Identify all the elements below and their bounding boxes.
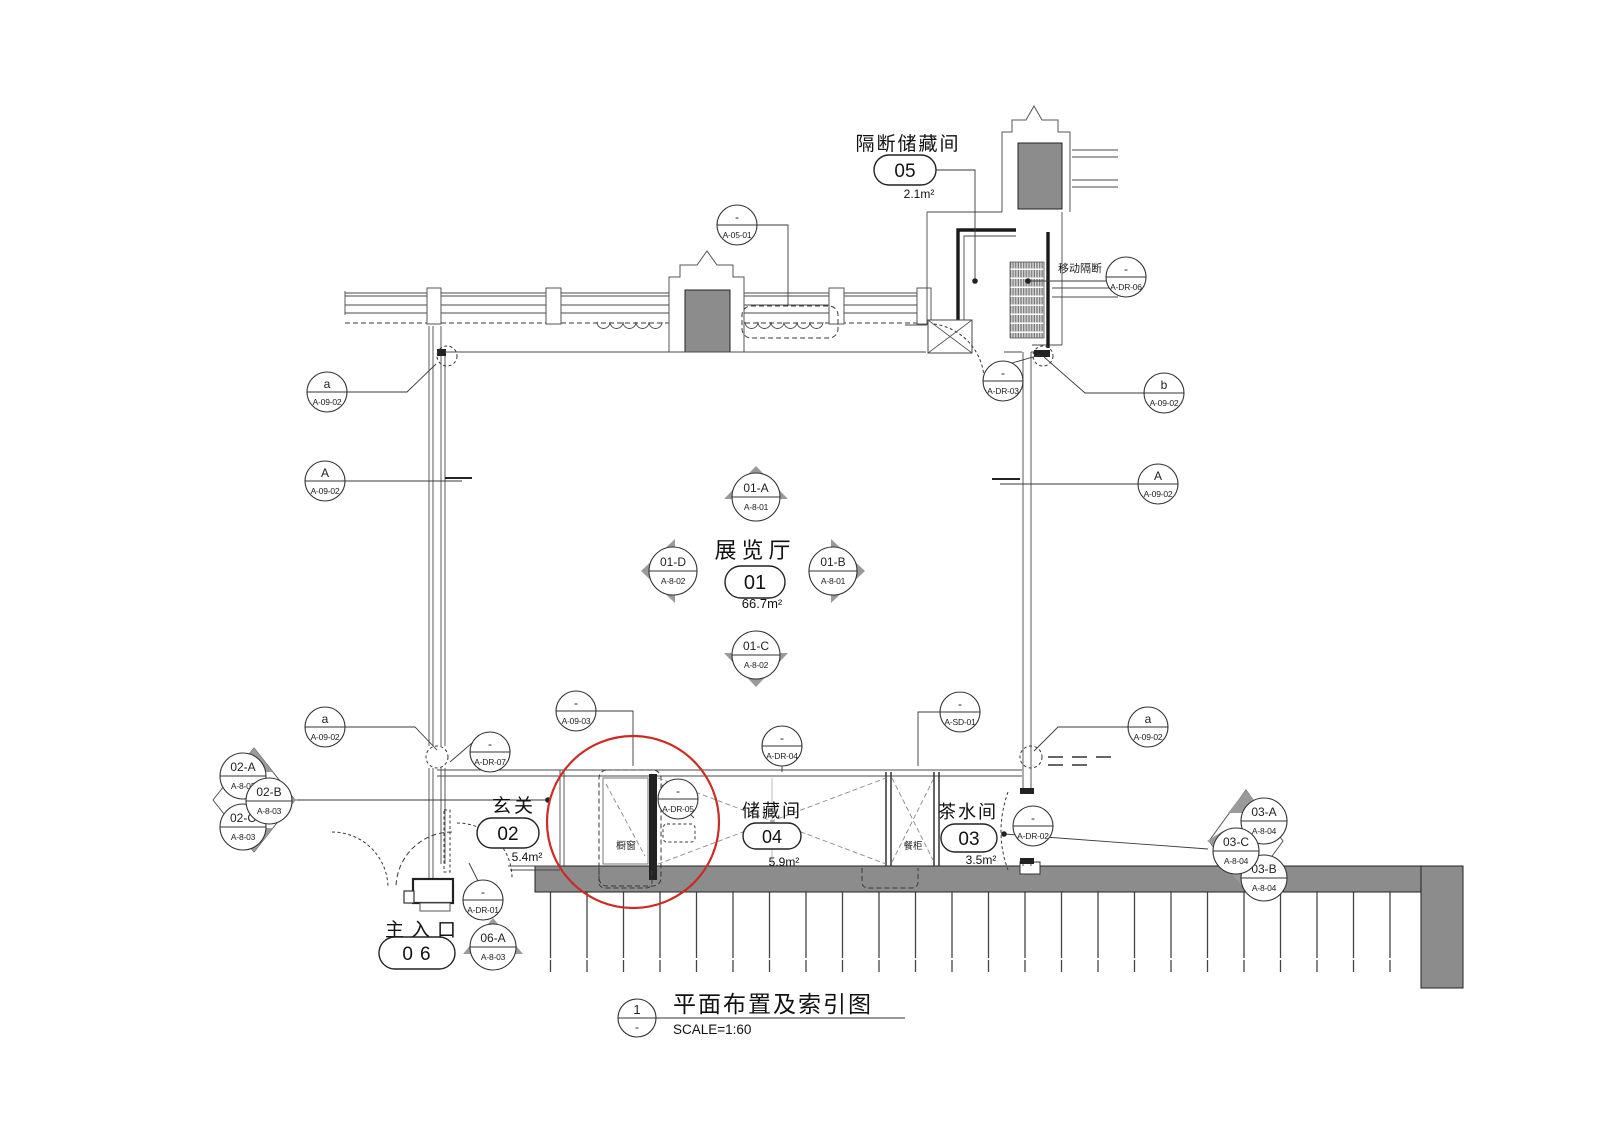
callout-a-dr-02: - A-DR-02	[1013, 806, 1053, 846]
column-fill	[1018, 143, 1062, 209]
svg-text:A-DR-01: A-DR-01	[467, 905, 499, 915]
svg-text:-: -	[1124, 262, 1128, 276]
svg-text:A-DR-07: A-DR-07	[474, 757, 506, 767]
svg-text:-: -	[481, 885, 485, 899]
elev-marker-01-c: 01-C A-8-02	[724, 631, 788, 687]
sideboard-label: 餐柜	[903, 840, 923, 852]
svg-text:01-B: 01-B	[820, 555, 845, 569]
svg-text:A: A	[1154, 469, 1162, 483]
elev-marker-02-b: 02-B A-8-03	[246, 778, 292, 824]
svg-text:02-A: 02-A	[230, 760, 255, 774]
svg-text:01: 01	[744, 572, 766, 594]
svg-text:01-C: 01-C	[743, 639, 769, 653]
svg-text:A-DR-05: A-DR-05	[662, 804, 694, 814]
room-partition-storage	[905, 212, 1062, 353]
svg-text:2.1m²: 2.1m²	[904, 187, 935, 201]
svg-text:茶水间: 茶水间	[938, 802, 998, 822]
svg-text:02-B: 02-B	[256, 785, 281, 799]
callout-a-dr-07: - A-DR-07	[470, 732, 510, 772]
sheet-number: 1	[633, 1002, 640, 1017]
svg-text:5.9m²: 5.9m²	[769, 855, 800, 869]
svg-text:-: -	[676, 784, 680, 798]
svg-text:A-8-03: A-8-03	[231, 832, 256, 842]
movable-partition-label: 移动隔断	[1058, 261, 1102, 275]
entrance-door-arc-left	[332, 832, 388, 888]
column-top-right	[1002, 106, 1070, 212]
svg-text:-: -	[958, 697, 962, 711]
svg-text:A-DR-06: A-DR-06	[1110, 282, 1142, 292]
svg-text:隔断储藏间: 隔断储藏间	[855, 133, 960, 155]
pier	[917, 288, 931, 324]
axis-bubble-a-top-left: a A-09-02	[307, 372, 347, 412]
svg-text:A-09-03: A-09-03	[562, 716, 591, 726]
axis-bubble-A-right: A A-09-02	[1138, 464, 1178, 504]
svg-text:玄关: 玄关	[492, 795, 536, 817]
room-tag-entry: 玄关 02 5.4m²	[477, 795, 542, 864]
svg-text:-: -	[1031, 811, 1035, 825]
elev-marker-cluster-02: 02-A A-8-03 02-C A-8-03 02-B A-8-03	[213, 748, 297, 852]
svg-text:A-8-03: A-8-03	[481, 952, 506, 962]
svg-text:展览厅: 展览厅	[714, 538, 795, 563]
axis-bubble-b-top-right: b A-09-02	[1144, 373, 1184, 413]
svg-text:a: a	[322, 712, 329, 726]
svg-text:03-C: 03-C	[1223, 835, 1249, 849]
elev-marker-03-c: 03-C A-8-04	[1213, 828, 1259, 874]
svg-text:A-8-04: A-8-04	[1252, 826, 1277, 836]
facade-detail-dashed-box	[742, 306, 838, 338]
svg-text:A-8-04: A-8-04	[1224, 856, 1249, 866]
elev-marker-01-a: 01-A A-8-01	[724, 466, 788, 521]
svg-text:06-A: 06-A	[480, 931, 505, 945]
column-fill	[685, 290, 730, 352]
axis-bubble-a-bottom-right: a A-09-02	[1128, 707, 1168, 747]
svg-text:A-09-02: A-09-02	[1144, 489, 1173, 499]
svg-text:-: -	[574, 696, 578, 710]
svg-text:A-09-02: A-09-02	[1150, 398, 1179, 408]
pier	[546, 288, 561, 324]
callout-a-dr-03: - A-DR-03	[983, 361, 1023, 401]
room-tag-main-entrance: 主入口 06	[379, 919, 463, 969]
svg-text:A-8-02: A-8-02	[661, 576, 686, 586]
floor-plan-drawing: a A-09-02 A A-09-02 b A-09-02 A A-09-02 …	[0, 0, 1600, 1131]
svg-text:A-8-04: A-8-04	[1252, 883, 1277, 893]
entrance-step-block	[413, 879, 453, 903]
display-window-mullion	[649, 774, 657, 880]
svg-text:01-A: 01-A	[743, 481, 768, 495]
elev-marker-01-b: 01-B A-8-01	[809, 539, 865, 603]
svg-text:A-09-02: A-09-02	[311, 732, 340, 742]
svg-text:-: -	[780, 731, 784, 745]
room-tag-storage: 储藏间 04 5.9m²	[742, 801, 802, 869]
svg-text:05: 05	[894, 161, 915, 182]
room-tag-tea: 茶水间 03 3.5m²	[938, 802, 998, 867]
svg-text:A-8-03: A-8-03	[257, 806, 282, 816]
svg-text:a: a	[1145, 712, 1152, 726]
svg-text:A-09-02: A-09-02	[1134, 732, 1163, 742]
title-block: 1 - 平面布置及索引图 SCALE=1:60	[618, 991, 905, 1037]
svg-text:A-09-02: A-09-02	[311, 486, 340, 496]
svg-text:A-DR-04: A-DR-04	[766, 751, 798, 761]
svg-text:A-8-02: A-8-02	[744, 660, 769, 670]
svg-text:01-D: 01-D	[660, 555, 686, 569]
axis-bubble-a-bottom-left: a A-09-02	[305, 707, 345, 747]
svg-text:3.5m²: 3.5m²	[966, 853, 997, 867]
tea-room-door-arc	[1001, 792, 1008, 870]
room-tag-partition-storage: 隔断储藏间 05 2.1m²	[855, 133, 960, 201]
elev-marker-01-d: 01-D A-8-02	[641, 539, 697, 603]
svg-text:A: A	[321, 466, 329, 480]
svg-text:-: -	[735, 210, 739, 224]
svg-text:A-DR-03: A-DR-03	[987, 386, 1019, 396]
svg-text:b: b	[1161, 378, 1168, 392]
svg-text:02: 02	[497, 824, 518, 845]
callout-a-dr-05: - A-DR-05	[658, 779, 698, 819]
callout-a-sd-01: - A-SD-01	[940, 692, 980, 732]
pier	[427, 288, 441, 324]
callout-a-05-01: - A-05-01	[717, 205, 757, 245]
column-top-center	[669, 251, 744, 352]
drawing-title: 平面布置及索引图	[673, 991, 873, 1017]
svg-text:-: -	[1001, 366, 1005, 380]
elev-marker-06-a: 06-A A-8-03	[463, 918, 523, 970]
svg-text:储藏间: 储藏间	[742, 801, 802, 821]
callout-a-dr-06: - A-DR-06	[1106, 257, 1146, 297]
wall-left	[404, 326, 453, 911]
svg-text:5.4m²: 5.4m²	[512, 850, 543, 864]
movable-partition-hatch	[1010, 262, 1044, 338]
svg-text:A-05-01: A-05-01	[723, 230, 752, 240]
svg-text:03: 03	[958, 829, 979, 850]
axis-bubble-A-left: A A-09-02	[305, 461, 345, 501]
svg-text:66.7m²: 66.7m²	[742, 596, 783, 611]
svg-text:03-A: 03-A	[1251, 805, 1276, 819]
terrace-decking	[535, 862, 1463, 988]
display-window-label: 橱窗	[616, 839, 636, 852]
svg-text:A-8-01: A-8-01	[744, 502, 769, 512]
svg-text:a: a	[324, 377, 331, 391]
drawing-scale: SCALE=1:60	[673, 1022, 751, 1037]
svg-text:A-SD-01: A-SD-01	[944, 717, 976, 727]
svg-text:06: 06	[402, 944, 437, 965]
svg-text:A-8-01: A-8-01	[821, 576, 846, 586]
callout-a-dr-01: - A-DR-01	[463, 880, 503, 920]
callout-a-dr-04: - A-DR-04	[762, 726, 802, 766]
svg-text:04: 04	[762, 827, 782, 847]
svg-text:A-DR-02: A-DR-02	[1017, 831, 1049, 841]
svg-text:A-09-02: A-09-02	[313, 397, 342, 407]
terrace-wall-leg	[1421, 866, 1463, 988]
terrace-wall-band	[535, 866, 1425, 892]
callout-a-09-03: - A-09-03	[556, 691, 596, 731]
sheet-revision: -	[635, 1020, 639, 1034]
room-tag-exhibition: 展览厅 01 66.7m²	[714, 538, 795, 611]
svg-text:-: -	[488, 737, 492, 751]
